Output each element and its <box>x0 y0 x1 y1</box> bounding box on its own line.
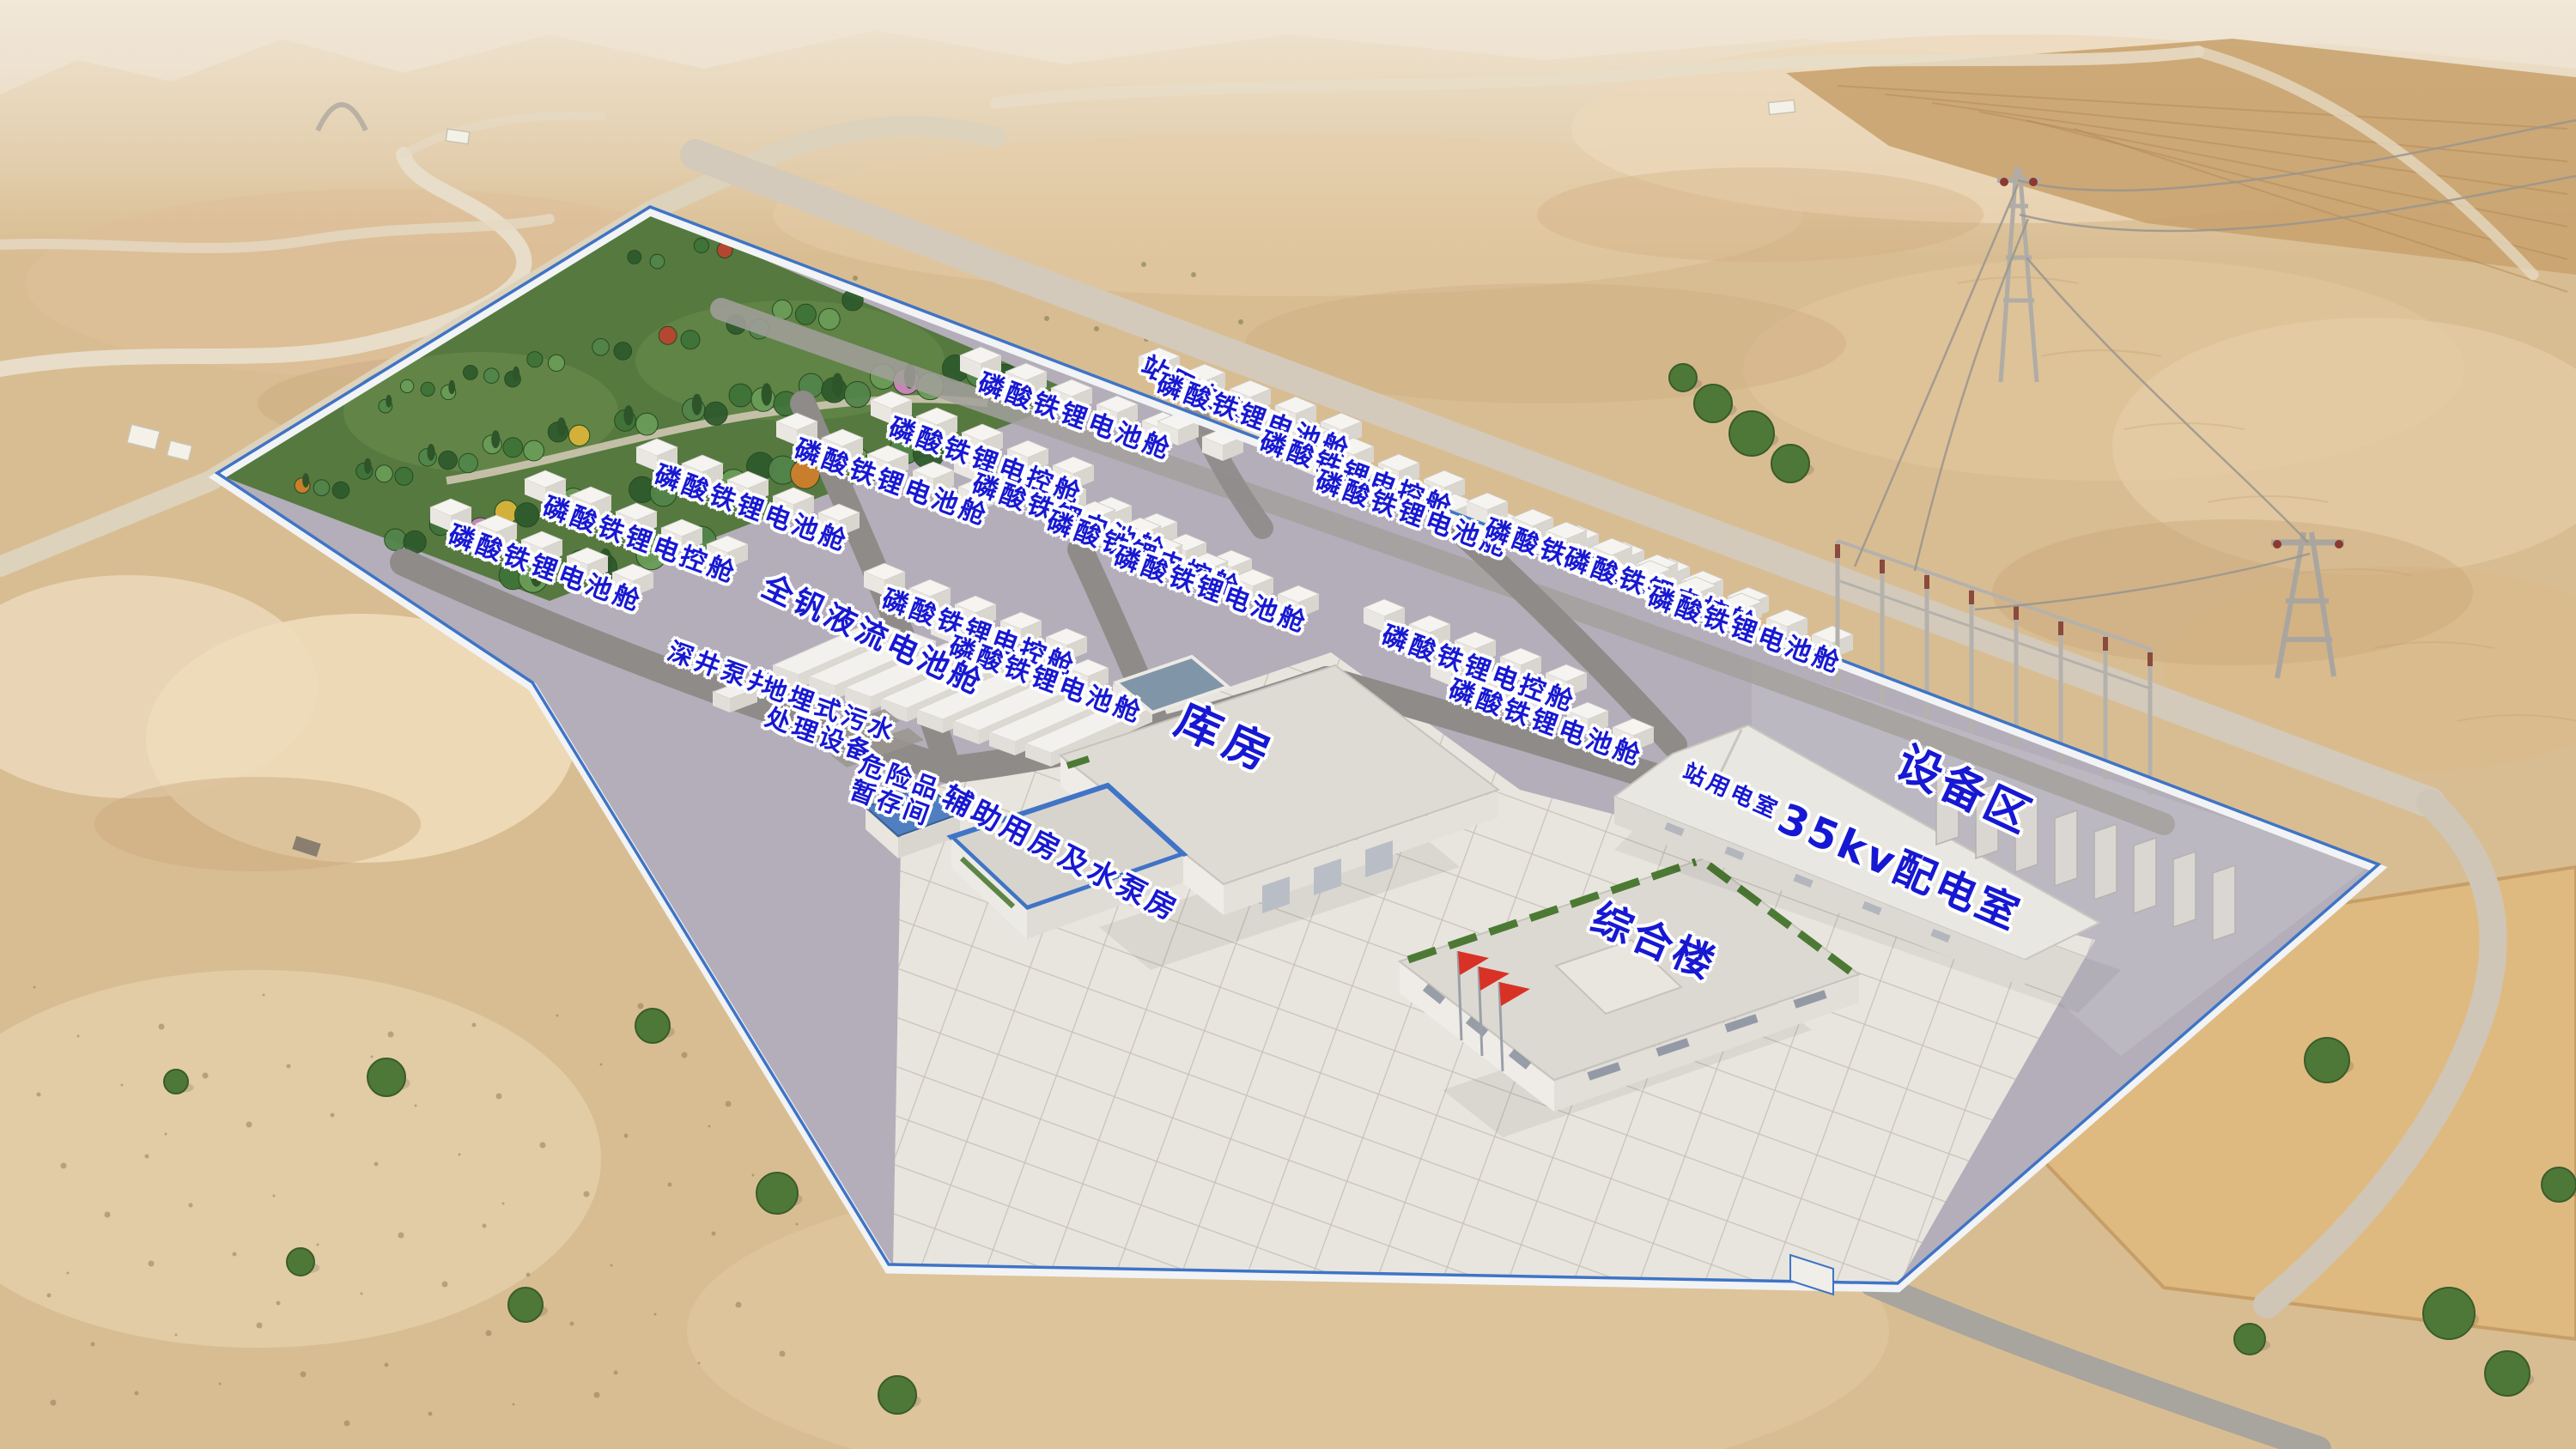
bush <box>635 1009 670 1043</box>
cypress-tree <box>302 473 309 488</box>
tree <box>681 330 700 349</box>
tree <box>628 251 641 264</box>
scrub-dot <box>698 1362 701 1365</box>
tree <box>459 453 477 472</box>
scrub-dot <box>121 1084 124 1087</box>
transformer-unit <box>2213 865 2235 941</box>
cypress-tree <box>762 383 772 405</box>
scrub-dot <box>374 1162 379 1167</box>
scrub-dot <box>624 1134 629 1138</box>
bush <box>756 1173 798 1214</box>
scrub-dot <box>594 1392 600 1398</box>
scrub-dot <box>33 986 36 989</box>
scrub-dot <box>301 1372 307 1378</box>
scrub-dot <box>1094 326 1099 331</box>
cypress-tree <box>427 444 434 461</box>
tree <box>524 440 544 461</box>
scrub-dot <box>257 1323 263 1329</box>
tree <box>439 451 458 470</box>
tree <box>514 503 538 527</box>
scrub-dot <box>1141 262 1146 267</box>
scrub-dot <box>428 1412 433 1416</box>
scrub-dot <box>276 1301 281 1306</box>
tree <box>704 402 727 425</box>
cypress-tree <box>364 458 372 474</box>
scrub-dot <box>1044 316 1049 321</box>
scrub-dot <box>37 1093 41 1097</box>
tree <box>844 382 870 408</box>
scrub-dot <box>736 1302 742 1308</box>
tree <box>614 343 632 361</box>
bush <box>2234 1324 2265 1355</box>
scrub-dot <box>496 1094 502 1100</box>
scrub-dot <box>331 1113 335 1118</box>
transformer-unit <box>1976 783 1998 858</box>
cypress-tree <box>623 405 633 426</box>
tree <box>795 304 816 324</box>
tree <box>527 352 543 367</box>
cypress-tree <box>448 380 455 394</box>
scrub-dot <box>796 1223 799 1226</box>
scrub-dot <box>708 1125 711 1128</box>
tree <box>313 480 330 496</box>
tree <box>421 382 434 396</box>
scrub-dot <box>388 1032 394 1038</box>
cypress-tree <box>386 395 392 408</box>
scrub-dot <box>472 1023 477 1028</box>
scrub-dot <box>526 1273 531 1277</box>
scrub-dot <box>47 1294 52 1298</box>
scrub-dot <box>614 1371 618 1375</box>
scrub-dot <box>344 1421 350 1427</box>
tree <box>818 308 840 330</box>
bush <box>2485 1351 2530 1396</box>
scrub-dot <box>1191 272 1196 277</box>
scrub-dot <box>570 1322 574 1326</box>
bush <box>1669 364 1697 391</box>
tree <box>463 366 477 380</box>
cypress-tree <box>513 367 519 382</box>
scrub-dot <box>219 1383 222 1385</box>
cypress-tree <box>491 430 500 448</box>
scrub-dot <box>67 1272 70 1275</box>
scrub-dot <box>361 1293 363 1295</box>
scrub-dot <box>600 1064 603 1066</box>
scrub-dot <box>398 1233 404 1239</box>
bush <box>287 1248 314 1276</box>
scrub-dot <box>726 1101 732 1107</box>
scrub-dot <box>149 1261 155 1267</box>
tree <box>484 368 500 384</box>
tree <box>659 326 677 344</box>
scrub-dot <box>189 1203 193 1208</box>
scrub-dot <box>556 1015 559 1017</box>
scrub-dot <box>287 1064 291 1069</box>
scrub-dot <box>77 1035 80 1038</box>
scrub-dot <box>175 1334 178 1337</box>
scrub-dot <box>540 1143 546 1149</box>
transformer-unit <box>2055 810 2077 886</box>
bush <box>2423 1288 2475 1339</box>
scrub-dot <box>502 1203 505 1205</box>
scrub-dot <box>668 1183 672 1187</box>
transformer-unit <box>2134 838 2156 913</box>
tree <box>375 465 392 482</box>
scrub-dot <box>385 1363 389 1367</box>
scrub-dot <box>51 1400 57 1406</box>
scrub-dot <box>105 1212 111 1218</box>
tree <box>650 480 677 506</box>
scrub-dot <box>712 1232 716 1236</box>
scrub-dot <box>459 1154 461 1156</box>
bush <box>2305 1038 2349 1082</box>
scrub-dot <box>682 1052 688 1058</box>
bush <box>368 1058 405 1096</box>
scrub-dot <box>513 1404 515 1406</box>
tree <box>592 339 610 356</box>
scrub-dot <box>273 1195 276 1197</box>
tree <box>635 413 658 435</box>
scrub-dot <box>654 1313 657 1316</box>
scrub-dot <box>263 994 265 997</box>
scrub-dot <box>61 1163 67 1169</box>
transformer-unit <box>2173 852 2196 927</box>
tree <box>568 425 589 446</box>
tree <box>694 238 708 252</box>
scrub-dot <box>91 1343 95 1347</box>
scrub-dot <box>483 1224 487 1228</box>
scrub-dot <box>752 1174 755 1177</box>
cypress-tree <box>832 373 843 397</box>
scrub-dot <box>371 1056 374 1058</box>
tree <box>650 254 665 269</box>
scrub-dot <box>853 276 858 281</box>
scrub-dot <box>584 1191 590 1197</box>
scrub-dot <box>159 1024 165 1030</box>
bush <box>164 1070 188 1094</box>
cypress-tree <box>692 394 702 415</box>
tree <box>332 482 349 499</box>
scrub-dot <box>780 1351 786 1357</box>
tree <box>400 379 413 392</box>
tree <box>729 384 752 407</box>
scrub-dot <box>233 1252 237 1257</box>
scrub-dot <box>442 1282 448 1288</box>
bush <box>2542 1167 2576 1202</box>
bush <box>878 1376 916 1414</box>
transformer-unit <box>2094 824 2117 900</box>
scenery <box>0 0 2576 1449</box>
bush <box>1694 385 1732 422</box>
aerial-site-rendering: 磷酸铁锂电池舱磷酸铁锂电控舱磷酸铁锂电池舱磷酸铁锂电池舱磷酸铁锂电控舱磷酸铁锂电… <box>0 0 2576 1449</box>
scrub-dot <box>165 1133 167 1136</box>
transformer-unit <box>2015 797 2038 872</box>
bush <box>508 1288 543 1322</box>
tree <box>548 355 564 371</box>
scrub-dot <box>246 1122 252 1128</box>
scrub-dot <box>317 1244 319 1246</box>
scrub-dot <box>1238 319 1243 324</box>
tree <box>385 529 406 550</box>
transformer-unit <box>1936 769 1959 845</box>
scrub-dot <box>145 1155 149 1159</box>
bush <box>1729 411 1774 456</box>
tree <box>395 467 413 485</box>
tree <box>503 438 523 458</box>
tree <box>636 539 666 569</box>
scrub-dot <box>611 1264 613 1267</box>
scrub-dot <box>135 1391 139 1396</box>
scrub-dot <box>203 1073 209 1079</box>
cypress-tree <box>557 417 567 436</box>
bush <box>1771 445 1809 482</box>
scrub-dot <box>415 1105 417 1107</box>
scrub-dot <box>486 1331 492 1337</box>
scrub-dot <box>638 1003 644 1009</box>
